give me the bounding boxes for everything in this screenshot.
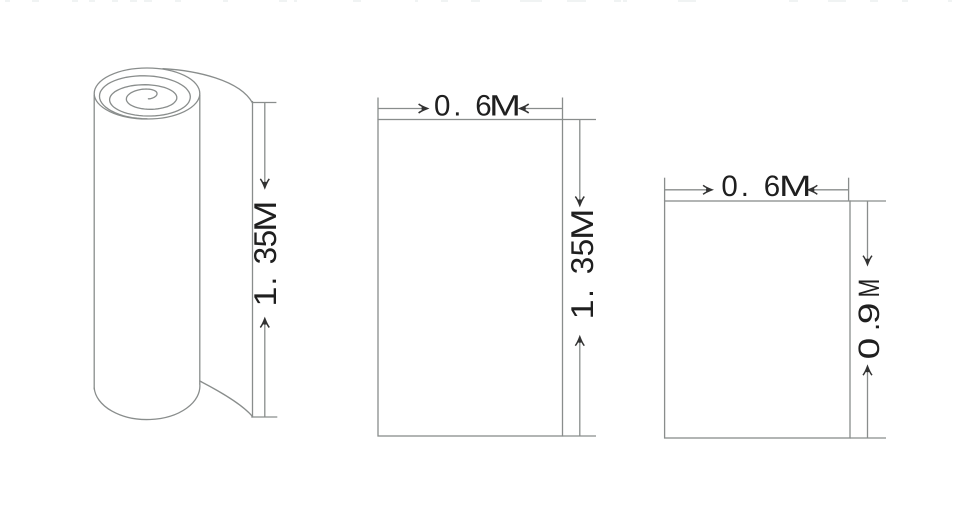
svg-text:0.6M: 0.6M <box>721 170 811 203</box>
svg-text:0.6M: 0.6M <box>434 90 521 123</box>
svg-text:0.9M: 0.9M <box>853 279 886 360</box>
svg-text:1.35M: 1.35M <box>247 200 283 306</box>
svg-text:1.35M: 1.35M <box>564 209 600 320</box>
